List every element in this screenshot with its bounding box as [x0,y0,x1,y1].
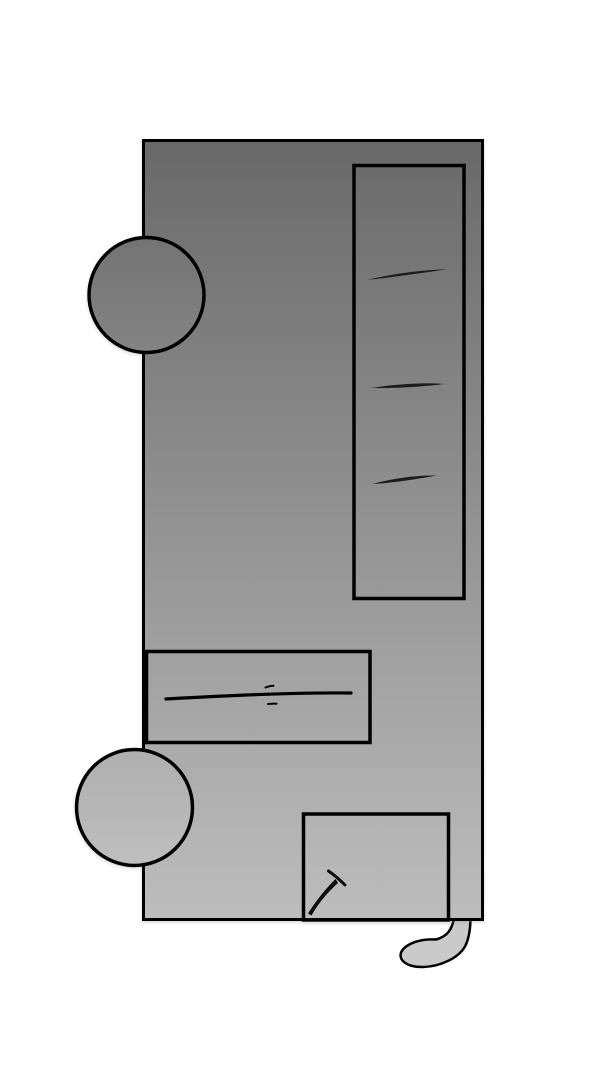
knob-bottom [77,750,193,866]
sketch-page [0,0,600,1080]
knob-top [89,238,204,353]
machine-body [144,141,483,920]
sketch-canvas [0,0,600,1080]
